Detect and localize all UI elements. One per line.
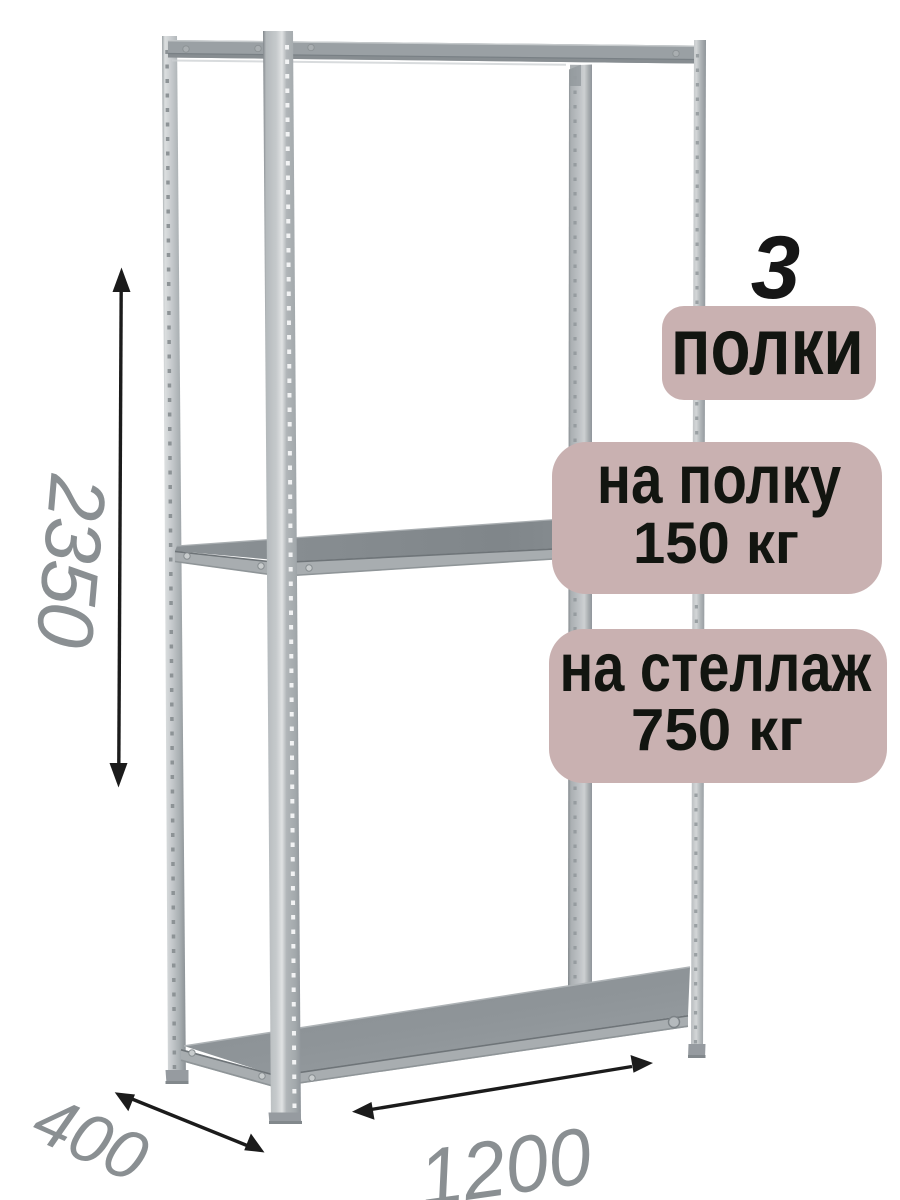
svg-text:на полку: на полку <box>597 442 841 519</box>
svg-text:150 кг: 150 кг <box>633 511 799 576</box>
svg-text:на стеллаж: на стеллаж <box>560 629 873 706</box>
svg-text:750 кг: 750 кг <box>631 697 803 763</box>
svg-text:2350: 2350 <box>20 471 124 651</box>
svg-text:полки: полки <box>671 300 864 391</box>
